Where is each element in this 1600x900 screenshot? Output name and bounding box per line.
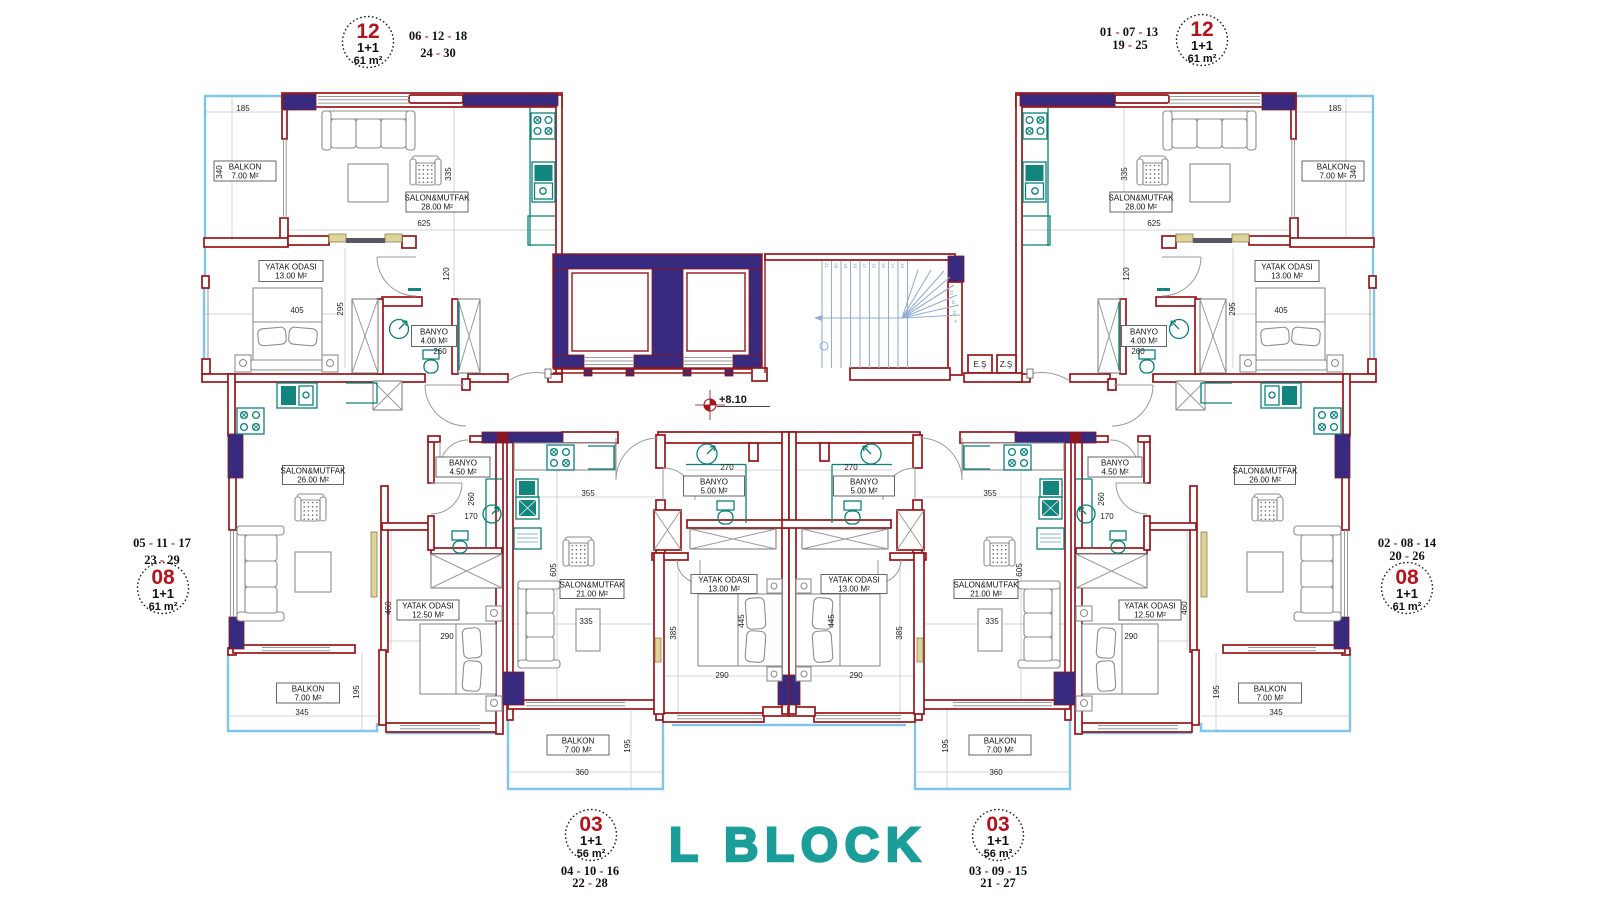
svg-text:195: 195: [352, 685, 361, 699]
svg-text:7.00 M²: 7.00 M²: [1319, 172, 1346, 181]
svg-text:290: 290: [440, 632, 454, 641]
svg-text:BANYO: BANYO: [1101, 459, 1129, 468]
svg-text:335: 335: [985, 617, 999, 626]
svg-text:BANYO: BANYO: [420, 328, 448, 337]
svg-text:335: 335: [579, 617, 593, 626]
svg-text:4.50 M²: 4.50 M²: [1101, 468, 1128, 477]
svg-text:20: 20: [834, 263, 839, 269]
svg-text:15: 15: [881, 263, 886, 269]
svg-text:345: 345: [295, 708, 309, 717]
svg-text:BALKON: BALKON: [1317, 163, 1350, 172]
svg-text:22 - 28: 22 - 28: [572, 876, 607, 890]
svg-text:460: 460: [384, 601, 393, 615]
svg-text:26.00 M²: 26.00 M²: [297, 476, 329, 485]
svg-text:10: 10: [952, 310, 957, 316]
svg-text:SALON&MUTFAK: SALON&MUTFAK: [281, 467, 347, 476]
svg-text:7.00 M²: 7.00 M²: [564, 746, 591, 755]
svg-text:290: 290: [1124, 632, 1138, 641]
svg-text:SALON&MUTFAK: SALON&MUTFAK: [560, 581, 626, 590]
svg-text:13: 13: [900, 263, 905, 269]
svg-text:SALON&MUTFAK: SALON&MUTFAK: [1233, 467, 1299, 476]
svg-text:1+1: 1+1: [357, 40, 379, 55]
svg-text:4.00 M²: 4.00 M²: [1130, 337, 1157, 346]
svg-text:385: 385: [895, 626, 904, 640]
svg-text:BALKON: BALKON: [1254, 685, 1287, 694]
svg-text:YATAK ODASI: YATAK ODASI: [828, 576, 880, 585]
svg-text:1+1: 1+1: [1191, 38, 1213, 53]
svg-text:360: 360: [575, 768, 589, 777]
svg-text:295: 295: [1228, 302, 1237, 316]
svg-text:290: 290: [849, 671, 863, 680]
svg-text:195: 195: [941, 739, 950, 753]
svg-text:L BLOCK: L BLOCK: [669, 819, 927, 872]
svg-text:260: 260: [1097, 492, 1106, 506]
svg-text:21.00 M²: 21.00 M²: [576, 590, 608, 599]
svg-text:BALKON: BALKON: [562, 737, 595, 746]
svg-text:345: 345: [1269, 708, 1283, 717]
svg-text:385: 385: [669, 626, 678, 640]
svg-text:625: 625: [417, 219, 431, 228]
svg-text:195: 195: [623, 739, 632, 753]
svg-text:12: 12: [949, 290, 954, 296]
svg-text:120: 120: [442, 267, 451, 281]
svg-text:1+1: 1+1: [152, 586, 174, 601]
svg-text:460: 460: [1180, 601, 1189, 615]
svg-text:21 - 27: 21 - 27: [980, 876, 1015, 890]
svg-text:28.00 M²: 28.00 M²: [1125, 203, 1157, 212]
svg-text:BANYO: BANYO: [850, 478, 878, 487]
svg-text:405: 405: [290, 306, 304, 315]
svg-text:02 - 08 - 14: 02 - 08 - 14: [1378, 536, 1437, 550]
svg-text:28.00 M²: 28.00 M²: [421, 203, 453, 212]
svg-text:340: 340: [215, 165, 224, 179]
svg-text:5.00 M²: 5.00 M²: [850, 487, 877, 496]
svg-text:YATAK ODASI: YATAK ODASI: [698, 576, 750, 585]
svg-text:23 - 29: 23 - 29: [144, 553, 179, 567]
svg-text:56 m²: 56 m²: [577, 848, 606, 860]
svg-text:19: 19: [843, 263, 848, 269]
svg-text:1+1: 1+1: [987, 833, 1009, 848]
svg-text:355: 355: [983, 489, 997, 498]
svg-text:13.00 M²: 13.00 M²: [1271, 272, 1303, 281]
svg-text:YATAK ODASI: YATAK ODASI: [265, 263, 317, 272]
svg-text:06 - 12 - 18: 06 - 12 - 18: [409, 29, 467, 43]
svg-text:01 - 07 - 13: 01 - 07 - 13: [1100, 25, 1158, 39]
svg-text:12.50 M²: 12.50 M²: [1134, 611, 1166, 620]
svg-text:195: 195: [1212, 685, 1221, 699]
svg-text:260: 260: [467, 492, 476, 506]
svg-text:24 - 30: 24 - 30: [420, 46, 455, 60]
svg-text:445: 445: [737, 614, 746, 628]
svg-text:YATAK ODASI: YATAK ODASI: [402, 602, 454, 611]
svg-text:185: 185: [1328, 104, 1342, 113]
svg-text:20 - 26: 20 - 26: [1389, 549, 1424, 563]
svg-text:270: 270: [720, 463, 734, 472]
svg-text:4.00 M²: 4.00 M²: [420, 337, 447, 346]
svg-text:17: 17: [862, 263, 867, 269]
svg-text:4.50 M²: 4.50 M²: [449, 468, 476, 477]
svg-text:170: 170: [464, 512, 478, 521]
svg-text:7.00 M²: 7.00 M²: [986, 746, 1013, 755]
svg-text:SALON&MUTFAK: SALON&MUTFAK: [1109, 194, 1175, 203]
svg-text:260: 260: [1131, 347, 1145, 356]
svg-text:625: 625: [1147, 219, 1161, 228]
svg-text:605: 605: [549, 563, 558, 577]
svg-text:YATAK ODASI: YATAK ODASI: [1261, 263, 1313, 272]
svg-text:12.50 M²: 12.50 M²: [412, 611, 444, 620]
svg-text:61 m²: 61 m²: [354, 55, 383, 67]
svg-text:360: 360: [989, 768, 1003, 777]
svg-text:14: 14: [891, 263, 896, 269]
svg-text:E.Ş: E.Ş: [974, 360, 987, 369]
svg-text:355: 355: [581, 489, 595, 498]
svg-text:13.00 M²: 13.00 M²: [838, 585, 870, 594]
svg-text:405: 405: [1274, 306, 1288, 315]
svg-text:13.00 M²: 13.00 M²: [275, 272, 307, 281]
svg-text:18: 18: [853, 263, 858, 269]
svg-text:61 m²: 61 m²: [149, 601, 178, 613]
svg-text:56 m²: 56 m²: [984, 848, 1013, 860]
svg-text:BANYO: BANYO: [1130, 328, 1158, 337]
svg-text:19 - 25: 19 - 25: [1112, 38, 1147, 52]
svg-text:290: 290: [715, 671, 729, 680]
svg-text:BANYO: BANYO: [449, 459, 477, 468]
svg-text:605: 605: [1015, 563, 1024, 577]
svg-text:BALKON: BALKON: [984, 737, 1017, 746]
svg-text:170: 170: [1100, 512, 1114, 521]
svg-text:SALON&MUTFAK: SALON&MUTFAK: [954, 581, 1020, 590]
svg-text:+8.10: +8.10: [719, 394, 747, 406]
svg-text:5.00 M²: 5.00 M²: [700, 487, 727, 496]
svg-text:260: 260: [433, 347, 447, 356]
svg-text:120: 120: [1122, 267, 1131, 281]
svg-text:1+1: 1+1: [580, 833, 602, 848]
svg-text:295: 295: [336, 302, 345, 316]
svg-text:SALON&MUTFAK: SALON&MUTFAK: [405, 194, 471, 203]
svg-text:7.00 M²: 7.00 M²: [231, 172, 258, 181]
svg-text:Z.Ş: Z.Ş: [1000, 360, 1012, 369]
svg-text:7.00 M²: 7.00 M²: [1256, 694, 1283, 703]
svg-text:21.00 M²: 21.00 M²: [970, 590, 1002, 599]
svg-text:16: 16: [872, 263, 877, 269]
svg-text:335: 335: [1120, 167, 1129, 181]
svg-text:21: 21: [824, 263, 829, 269]
svg-text:270: 270: [844, 463, 858, 472]
svg-text:BALKON: BALKON: [229, 163, 262, 172]
svg-text:13.00 M²: 13.00 M²: [708, 585, 740, 594]
svg-text:26.00 M²: 26.00 M²: [1249, 476, 1281, 485]
svg-text:340: 340: [1349, 165, 1358, 179]
svg-text:1+1: 1+1: [1396, 586, 1418, 601]
svg-text:185: 185: [236, 104, 250, 113]
svg-text:61 m²: 61 m²: [1188, 53, 1217, 65]
svg-text:BALKON: BALKON: [292, 685, 325, 694]
svg-text:445: 445: [827, 614, 836, 628]
svg-text:7.00 M²: 7.00 M²: [294, 694, 321, 703]
svg-text:11: 11: [951, 300, 956, 305]
svg-text:335: 335: [444, 167, 453, 181]
svg-text:YATAK ODASI: YATAK ODASI: [1124, 602, 1176, 611]
svg-text:61 m²: 61 m²: [1393, 601, 1422, 613]
svg-text:05 - 11 - 17: 05 - 11 - 17: [133, 536, 191, 550]
svg-text:BANYO: BANYO: [700, 478, 728, 487]
